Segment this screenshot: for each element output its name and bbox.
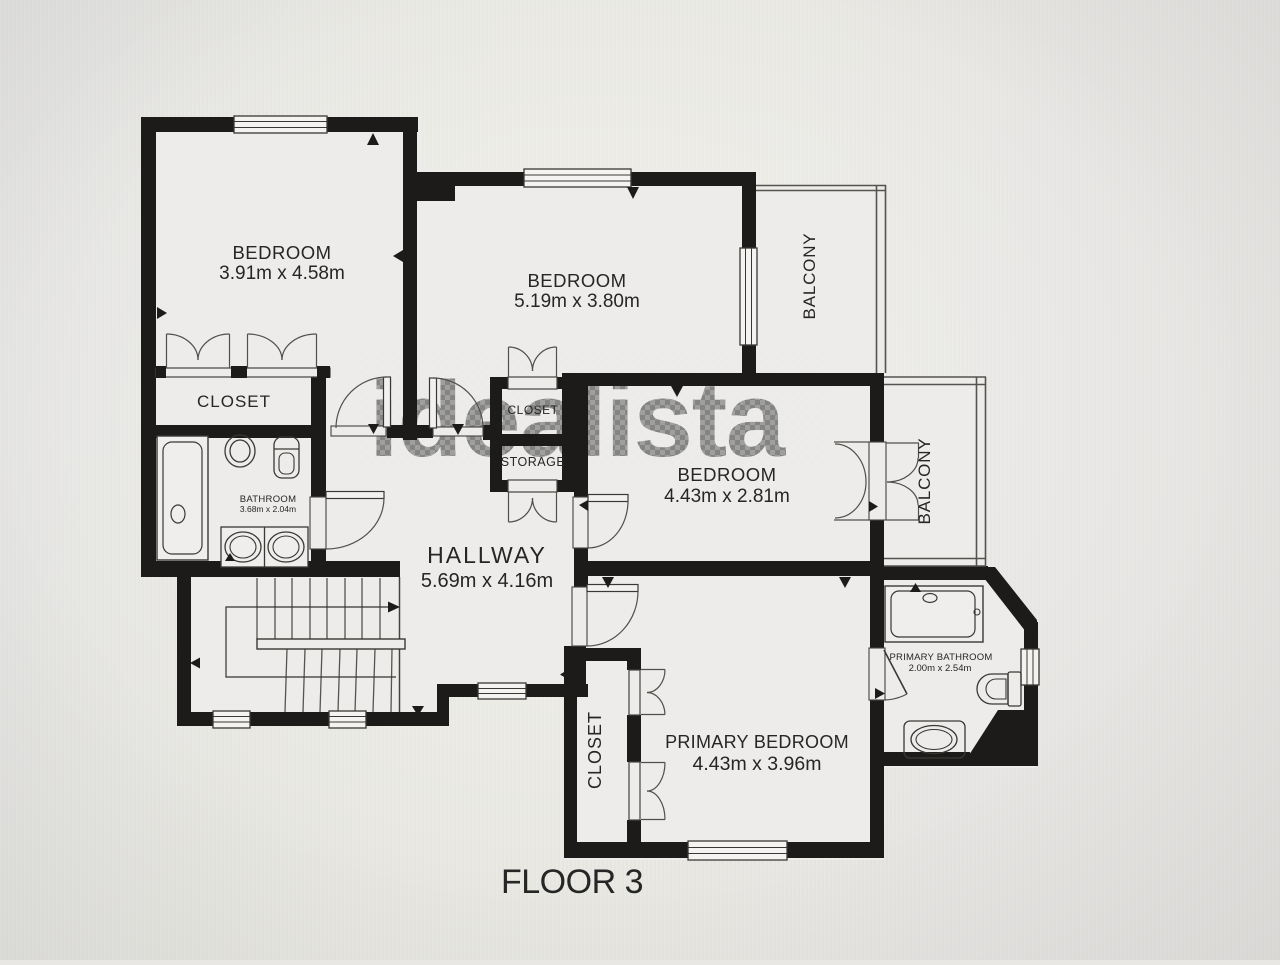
svg-text:3.91m x 4.58m: 3.91m x 4.58m [219, 263, 345, 284]
svg-text:5.19m x 3.80m: 5.19m x 3.80m [514, 291, 640, 312]
svg-text:STORAGE: STORAGE [501, 455, 565, 469]
svg-text:PRIMARY BATHROOM: PRIMARY BATHROOM [890, 652, 993, 663]
svg-text:BALCONY: BALCONY [915, 438, 934, 525]
svg-text:CLOSET: CLOSET [585, 711, 605, 789]
svg-text:4.43m x 2.81m: 4.43m x 2.81m [664, 486, 790, 507]
svg-text:5.69m x 4.16m: 5.69m x 4.16m [421, 570, 553, 592]
svg-text:BALCONY: BALCONY [800, 233, 819, 320]
svg-text:PRIMARY BEDROOM: PRIMARY BEDROOM [665, 732, 849, 752]
svg-text:CLOSET: CLOSET [507, 403, 558, 417]
svg-text:HALLWAY: HALLWAY [427, 542, 547, 568]
svg-text:FLOOR 3: FLOOR 3 [501, 863, 643, 901]
svg-text:2.00m x 2.54m: 2.00m x 2.54m [909, 663, 972, 674]
svg-text:4.43m x 3.96m: 4.43m x 3.96m [693, 753, 822, 775]
svg-text:BEDROOM: BEDROOM [677, 464, 776, 485]
svg-text:3.68m x 2.04m: 3.68m x 2.04m [240, 504, 296, 514]
svg-text:BEDROOM: BEDROOM [232, 242, 331, 263]
svg-text:CLOSET: CLOSET [197, 392, 271, 411]
svg-text:BEDROOM: BEDROOM [527, 270, 626, 291]
